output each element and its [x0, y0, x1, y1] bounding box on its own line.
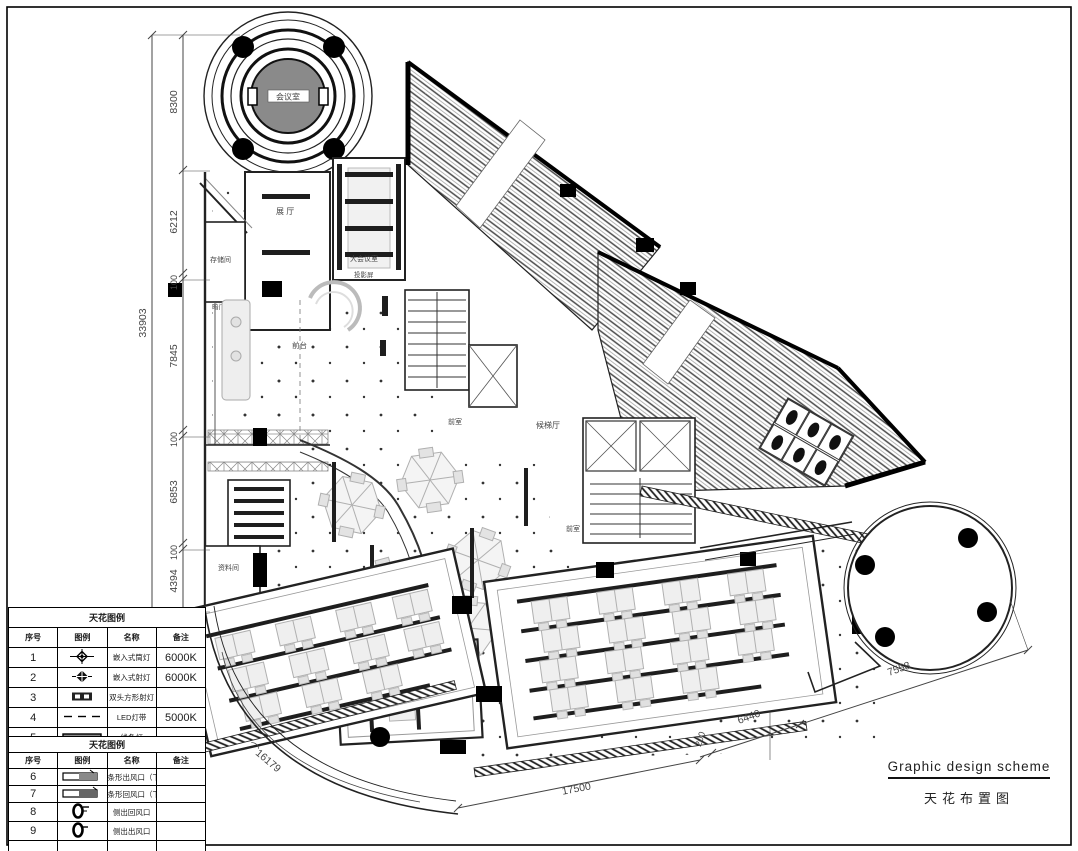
side-supply-vent-icon: [60, 822, 104, 838]
room-label-exhibition: 展 厅: [276, 207, 294, 216]
legend-no: 1: [9, 648, 58, 668]
dim-7845: 7845: [168, 344, 180, 368]
column: [323, 138, 345, 160]
legend-note: [156, 786, 205, 803]
linear-light-bar: [262, 250, 310, 255]
recessed-spotlight-icon: [60, 669, 104, 684]
legend-no: 6: [9, 769, 58, 786]
legend-no: 2: [9, 668, 58, 688]
legend-row: 3 双头方形射灯: [9, 688, 206, 708]
legend-note: 6000K: [156, 668, 205, 688]
column: [875, 627, 895, 647]
dim-6212: 6212: [168, 210, 180, 234]
column: [370, 727, 390, 747]
legend2-h-name: 名称: [107, 753, 156, 769]
legend-note: [156, 769, 205, 786]
legend-no: 9: [9, 822, 58, 841]
legend-row: 7 条形回风口（下回风）: [9, 786, 206, 803]
room-label-storage: 存储间: [210, 255, 231, 264]
legend-name: 嵌入式射灯: [107, 668, 156, 688]
drawing-sheet: 会议室 展 厅 存储间 暗门 大会议室 投影屏: [0, 0, 1078, 851]
legend-name: 嵌入式筒灯: [107, 648, 156, 668]
legend-name: 条形出风口（下出风）: [107, 769, 156, 786]
legend-row-empty: [9, 841, 206, 851]
legend2-h-symbol: 图例: [58, 753, 107, 769]
legend-note: 6000K: [156, 648, 205, 668]
legend2-h-note: 备注: [156, 753, 205, 769]
legend-note: [156, 822, 205, 841]
legend-name: 条形回风口（下回风）: [107, 786, 156, 803]
legend-row: 8 侧出回风口: [9, 803, 206, 822]
training-room: [228, 480, 290, 546]
legend-row: 1 嵌入式筒灯 6000K: [9, 648, 206, 668]
column: [232, 138, 254, 160]
dim-8300: 8300: [168, 90, 180, 114]
legend1-h-note: 备注: [156, 628, 205, 648]
legend-note: [156, 688, 205, 708]
legend-no: 8: [9, 803, 58, 822]
legend-row: 9 侧出出风口: [9, 822, 206, 841]
legend-no: 3: [9, 688, 58, 708]
room-label-anteroom1: 前室: [448, 417, 462, 426]
double-square-spotlight-icon: [60, 689, 104, 704]
room-label-projection: 投影屏: [354, 270, 374, 279]
side-return-vent-icon: [60, 803, 104, 819]
legend-name: 侧出回风口: [107, 803, 156, 822]
dim-6853: 6853: [168, 480, 180, 504]
legend-row: 6 条形出风口（下出风）: [9, 769, 206, 786]
room-label-reception: 前台: [292, 340, 307, 350]
column: [323, 36, 345, 58]
legend1-h-no: 序号: [9, 628, 58, 648]
legend-no: 7: [9, 786, 58, 803]
column: [855, 555, 875, 575]
legend-note: [156, 803, 205, 822]
dim-100c: 100: [169, 545, 179, 560]
legend2-title: 天花图例: [9, 737, 206, 753]
legend-table-hvac: 天花图例 序号 图例 名称 备注 6 条形出风口（下出风） 7 条形回风口（下回…: [8, 736, 206, 851]
title-block: Graphic design scheme 天花布置图: [878, 758, 1060, 807]
legend-name: 双头方形射灯: [107, 688, 156, 708]
drawing-title-en: Graphic design scheme: [888, 759, 1051, 779]
room-label-anteroom2: 前室: [566, 524, 580, 533]
meeting-room-circle: 会议室: [204, 12, 372, 180]
legend-row: 4 LED灯带 5000K: [9, 708, 206, 728]
dim-4394: 4394: [168, 569, 180, 593]
legend1-h-name: 名称: [107, 628, 156, 648]
room-label-archive: 资料间: [218, 563, 239, 572]
recessed-downlight-icon: [60, 649, 104, 664]
room-label-lobby: 候梯厅: [536, 420, 560, 430]
dim-100b: 100: [169, 432, 179, 447]
legend-note: 5000K: [156, 708, 205, 728]
column: [958, 528, 978, 548]
column: [232, 36, 254, 58]
room-label-meeting: 会议室: [276, 92, 300, 102]
drawing-title-zh: 天花布置图: [878, 788, 1060, 807]
legend-table-lighting: 天花图例 序号 图例 名称 备注 1 嵌入式筒灯 6000K 2 嵌入式射灯 6…: [8, 607, 206, 748]
linear-light-bar: [262, 194, 310, 199]
legend-name: LED灯带: [107, 708, 156, 728]
legend2-h-no: 序号: [9, 753, 58, 769]
legend-row: 2 嵌入式射灯 6000K: [9, 668, 206, 688]
legend1-title: 天花图例: [9, 608, 206, 628]
legend1-h-symbol: 图例: [58, 628, 107, 648]
large-meeting-room: 大会议室 投影屏: [333, 158, 405, 280]
column: [977, 602, 997, 622]
stair-core-2: 前室: [566, 418, 695, 543]
bar-supply-vent-icon: [60, 769, 104, 783]
legend-name: 侧出出风口: [107, 822, 156, 841]
dim-100a: 100: [169, 275, 179, 290]
dim-total-left: 33903: [137, 308, 149, 337]
legend-no: 4: [9, 708, 58, 728]
led-strip-icon: [60, 709, 104, 724]
bar-return-vent-icon: [60, 786, 104, 800]
room-label-big-meeting: 大会议室: [350, 254, 378, 263]
